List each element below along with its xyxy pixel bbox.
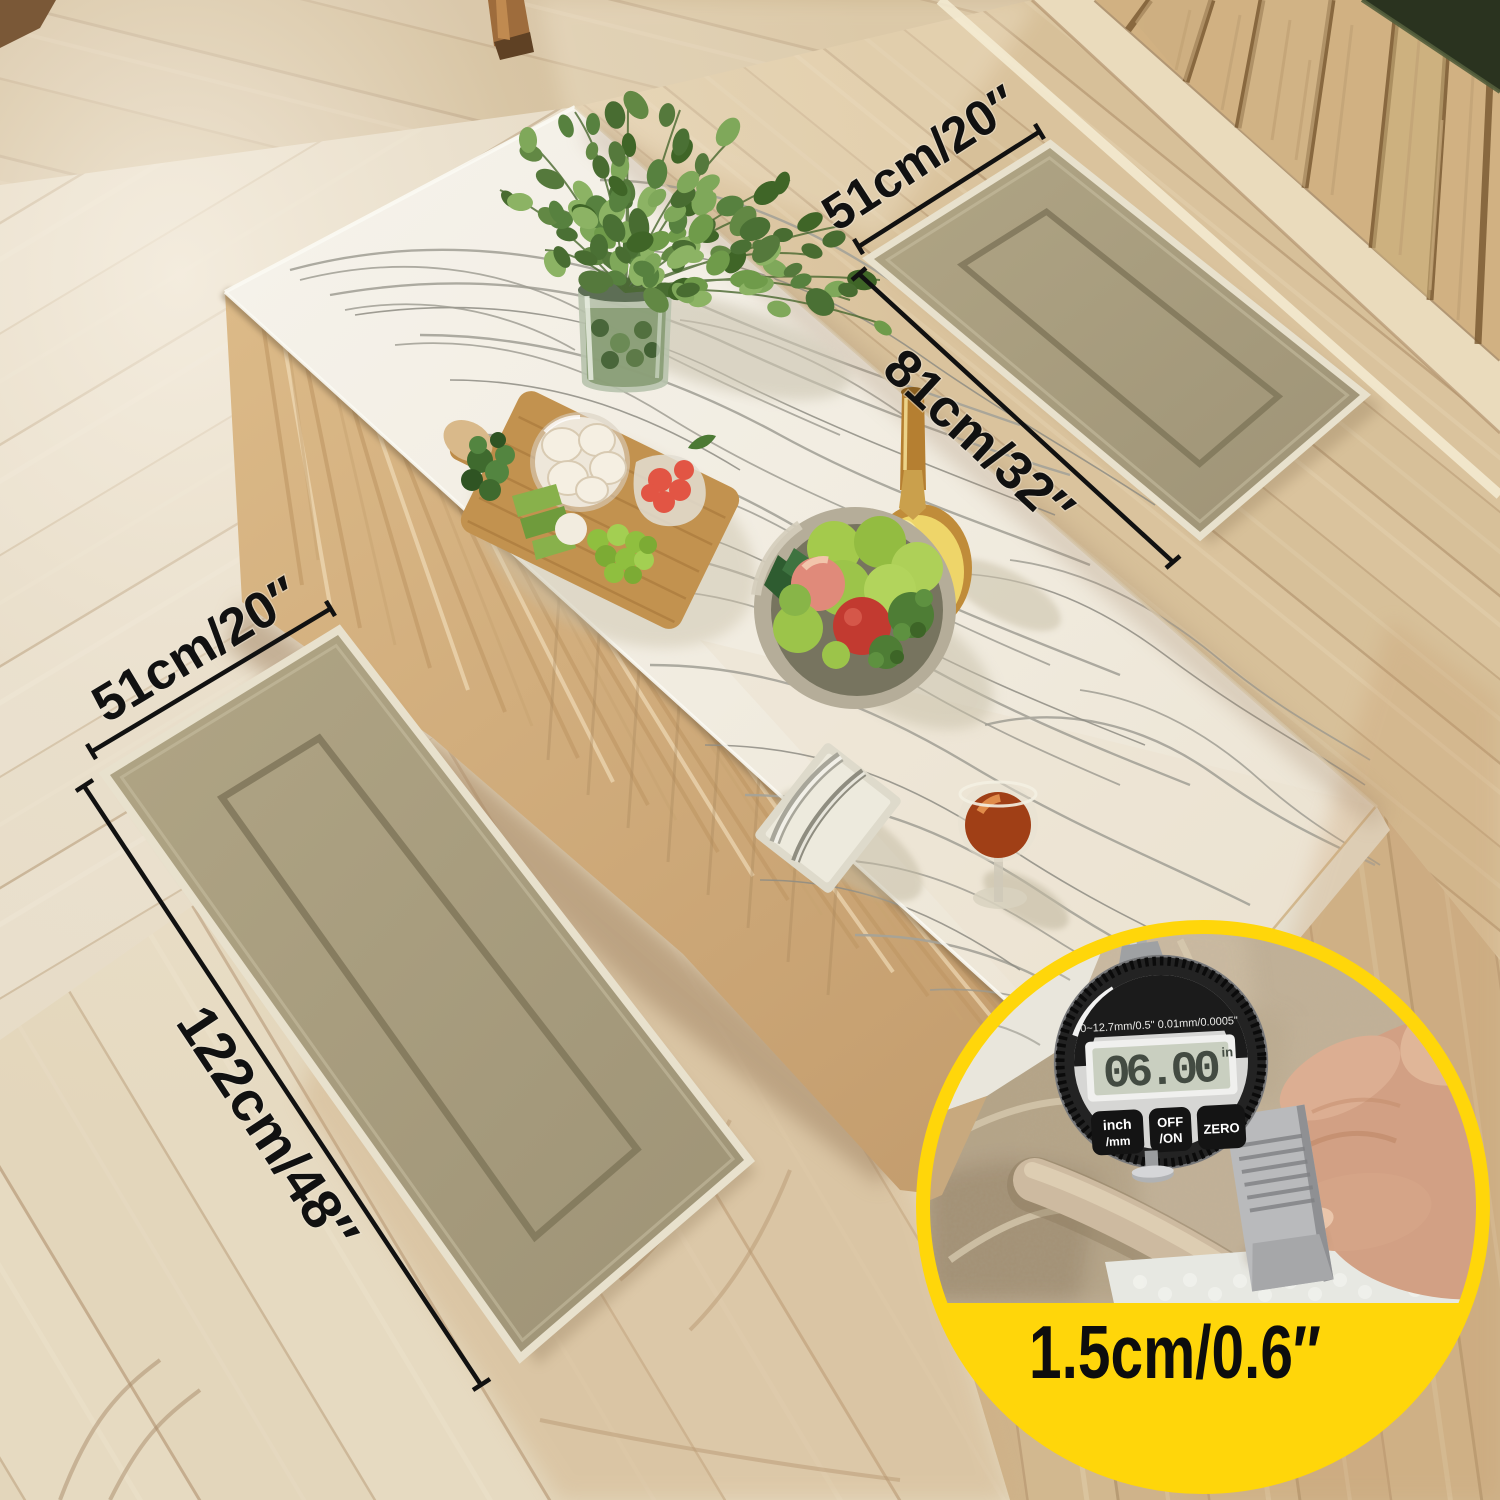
svg-text:ZERO: ZERO <box>1203 1120 1240 1137</box>
svg-text:/ON: /ON <box>1159 1130 1183 1146</box>
svg-text:/mm: /mm <box>1105 1134 1130 1149</box>
svg-text:OFF: OFF <box>1157 1114 1184 1130</box>
svg-text:1.5cm/0.6″: 1.5cm/0.6″ <box>1029 1310 1321 1394</box>
svg-text:06.00: 06.00 <box>1102 1043 1220 1101</box>
svg-text:inch: inch <box>1102 1116 1132 1133</box>
svg-text:in: in <box>1221 1044 1233 1060</box>
